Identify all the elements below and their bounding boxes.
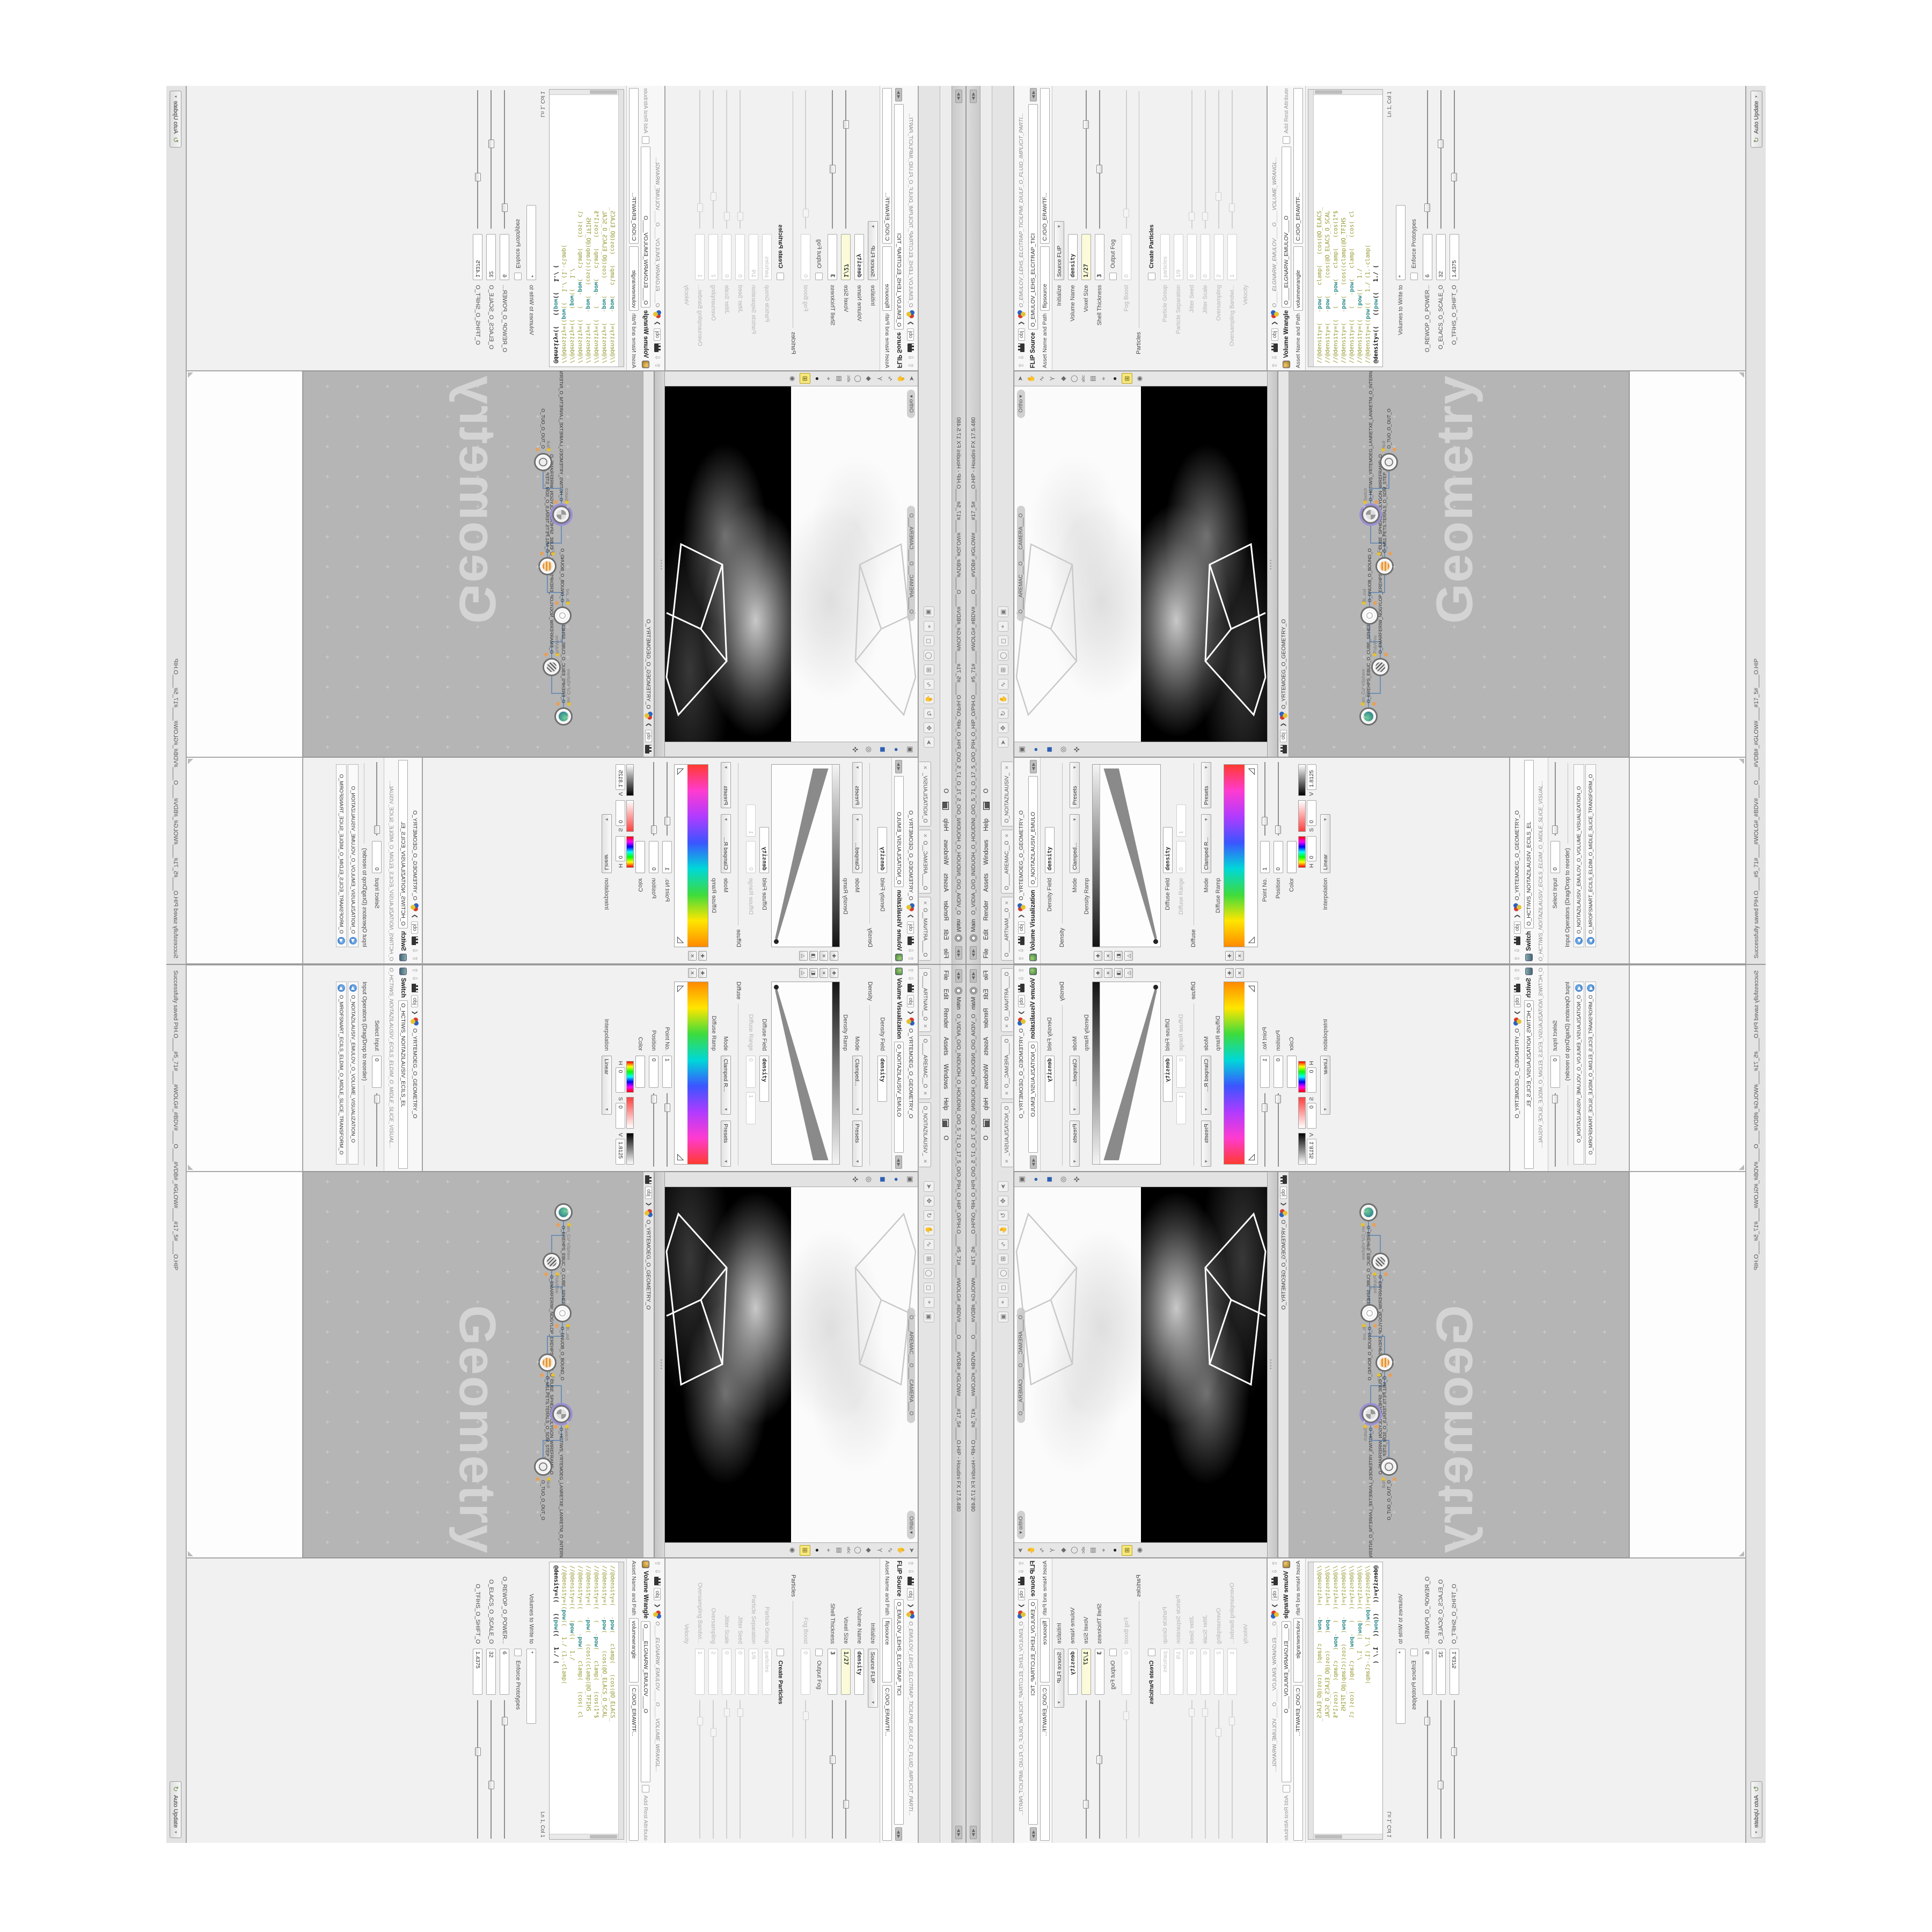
lamp-icon[interactable]: ⌖: [824, 1548, 832, 1552]
ramp-delete-button[interactable]: ✕: [1235, 968, 1244, 978]
lasso-icon[interactable]: ∿: [1038, 1547, 1045, 1553]
shelf-hand-icon[interactable]: ✋: [924, 1225, 935, 1235]
shelf-move-icon[interactable]: ✥: [924, 1196, 935, 1206]
asset-path-input[interactable]: C:/O/O_ERAWTF...: [1040, 88, 1050, 244]
shelf-move-icon[interactable]: ✥: [998, 1196, 1008, 1206]
node-flag-orange[interactable]: [556, 702, 560, 706]
param-slider[interactable]: [1082, 90, 1090, 229]
wrangle-title[interactable]: Volume Wrangle: [1283, 310, 1290, 358]
diffuse-range-min[interactable]: 0: [1176, 1056, 1186, 1088]
node-flag-orange[interactable]: [1372, 702, 1376, 706]
asset-path-input[interactable]: C:/O/O_ERAWTF...: [1040, 1685, 1050, 1841]
viewport-camera-menu[interactable]: O____AREMAC___O____CAMERA___O: [1017, 1308, 1025, 1423]
menu-render[interactable]: Render: [983, 901, 990, 921]
saturation-bar[interactable]: [1298, 1097, 1306, 1129]
nav-down-icon[interactable]: ⇩: [654, 355, 661, 360]
saturation-bar[interactable]: [626, 1097, 634, 1129]
network-node-bound[interactable]: BoundO_DNUOB_O_BOUND_O: [1360, 1304, 1379, 1322]
volvis-path-field[interactable]: O_NOITAZILAUSIV_EMULO: [894, 776, 904, 888]
select-box-icon[interactable]: ▣: [1018, 1176, 1026, 1182]
asset-path-input[interactable]: C:/O/O_ERAWTF...: [882, 88, 892, 244]
diffuse-field-input[interactable]: density: [1163, 827, 1173, 873]
nav-up-icon[interactable]: ⇧: [411, 968, 419, 973]
pane-resize-corner[interactable]: [1739, 759, 1744, 764]
pane-scroll-arrows[interactable]: ◀ ▶: [896, 1827, 903, 1841]
code-vscrollbar[interactable]: [1314, 90, 1382, 95]
network-canvas[interactable]: Geometry sm_CubeSphereO_ERE: [1289, 1172, 1629, 1558]
param-input[interactable]: 1/9: [749, 234, 759, 280]
select-input-slider[interactable]: [374, 1093, 381, 1167]
shelf-hand-icon[interactable]: ✋: [998, 693, 1008, 704]
network-geometry-breadcrumb[interactable]: O_YRTEMOEG_O_GEOMETRY_O: [646, 1220, 652, 1310]
menu-file[interactable]: File: [943, 970, 949, 980]
grid-display-icon-active[interactable]: ⊞: [800, 1545, 810, 1556]
lasso-icon[interactable]: ∿: [887, 1547, 894, 1553]
nav-down-icon[interactable]: ⇩: [907, 948, 914, 953]
nav-up-icon[interactable]: ⇧: [1513, 956, 1521, 961]
node-flag-orange[interactable]: [1373, 601, 1377, 605]
asset-name-input[interactable]: flipsource: [1040, 1618, 1050, 1682]
nav-down-icon[interactable]: ⇩: [654, 1569, 661, 1574]
density-presets-dropdown[interactable]: Presets▼: [852, 1121, 862, 1167]
param-input[interactable]: 1.4375: [473, 1649, 483, 1695]
shelf-cam-icon[interactable]: ▣: [924, 606, 935, 617]
geometry-breadcrumb[interactable]: O_YRTEMOEG_O_GEOMETRY_O: [1514, 1028, 1520, 1118]
update-mode-selector[interactable]: ↻ Auto Update ▾: [1751, 91, 1762, 148]
param-dropdown[interactable]: Source FLIP▼: [868, 1649, 878, 1708]
ramp-add-button[interactable]: ✚: [1225, 951, 1234, 961]
density-ramp-gradient[interactable]: [1093, 982, 1100, 1164]
param-slider[interactable]: [1188, 90, 1196, 229]
param-slider[interactable]: [843, 90, 850, 229]
pane-resize-corner[interactable]: [1739, 1551, 1744, 1556]
pin-icon[interactable]: ✜: [851, 747, 859, 752]
param-slider[interactable]: [501, 1700, 509, 1839]
param-input[interactable]: 1: [696, 234, 705, 280]
param-slider[interactable]: [737, 90, 744, 229]
density-field-input[interactable]: density: [1045, 827, 1055, 873]
vex-code-lines[interactable]: //@density=( -pow( clamp( (cos(@O_ELACS_…: [1314, 90, 1382, 367]
view-arrow-icon[interactable]: ➤: [908, 1547, 916, 1553]
param-input[interactable]: 3: [1095, 234, 1104, 280]
geometry-breadcrumb[interactable]: O_YRTEMOEG_O_GEOMETRY_O: [412, 810, 418, 901]
pane-tab-camera[interactable]: O____AREMAC__O✕: [920, 830, 932, 894]
param-slider[interactable]: [737, 1700, 744, 1839]
param-input[interactable]: 1/9: [1174, 234, 1183, 280]
param-checkbox[interactable]: [816, 1649, 823, 1656]
param-input[interactable]: particles: [1160, 234, 1170, 280]
snap-icon[interactable]: ◆: [865, 376, 873, 381]
network-editor[interactable]: obj ❯ O_YRTEMOEG_O_GEOMETRY_O Geometry: [303, 1172, 654, 1558]
density-ramp-gradient[interactable]: [832, 765, 839, 947]
obj-context-chip[interactable]: obj: [1514, 921, 1521, 934]
handles-sphere-icon[interactable]: ●: [1031, 748, 1040, 752]
pane-scroll-arrows[interactable]: ◀ ▶: [1030, 760, 1037, 773]
nav-up-icon[interactable]: ⇧: [1018, 968, 1025, 973]
node-flag-orange[interactable]: [1373, 1324, 1377, 1328]
pane-tab-mantra[interactable]: O____ARTNAM__O✕: [1001, 968, 1013, 1032]
value-bar[interactable]: [626, 1133, 634, 1165]
vex-code-editor[interactable]: //@density=( -pow( clamp( (cos(@O_ELACS_…: [549, 1562, 624, 1840]
grid-display-icon-active[interactable]: ⊞: [1122, 1545, 1132, 1556]
param-slider[interactable]: [1096, 1700, 1103, 1839]
input-operator-item[interactable]: ◀ O_MROFSNART_ECILS_ELDIM_O_MIDLE_SLICE_…: [1585, 764, 1596, 947]
obj-context-chip[interactable]: obj: [908, 921, 914, 934]
shelf-box-icon[interactable]: ◻: [998, 635, 1008, 646]
geometry-cube-icon[interactable]: ◼: [1045, 1176, 1053, 1182]
lasso-icon[interactable]: ∿: [887, 376, 894, 381]
hue-bar[interactable]: [626, 836, 634, 868]
diffuse-range-min[interactable]: 0: [1176, 841, 1186, 873]
param-slider[interactable]: [1188, 1700, 1196, 1839]
window-titlebar[interactable]: ◀ ▶ Main O_VIDIA_O/O_INIDUOH_O_HOUDINI_O…: [967, 965, 980, 1843]
value-input[interactable]: 1.8125: [616, 1139, 625, 1165]
pane-scroll-arrows[interactable]: ◀ ▶: [955, 946, 962, 960]
ramp-view-toggle[interactable]: ◨: [1114, 968, 1123, 978]
pin-icon[interactable]: ✜: [1073, 1176, 1081, 1182]
param-slider[interactable]: [1202, 1700, 1209, 1839]
value-bar[interactable]: [1298, 1133, 1306, 1165]
input-operator-item[interactable]: ◀ O_MROFSNART_ECILS_ELDIM_O_MIDLE_SLICE_…: [1585, 982, 1596, 1165]
saturation-input[interactable]: 0: [616, 1103, 625, 1129]
add-rest-checkbox[interactable]: [1283, 136, 1290, 144]
update-mode-selector[interactable]: ↻ Auto Update ▾: [170, 91, 182, 148]
shelf-select-icon[interactable]: ➤: [998, 1181, 1008, 1192]
param-slider[interactable]: [829, 90, 837, 229]
menu-render[interactable]: Render: [983, 1008, 990, 1028]
viewport-canvas[interactable]: O____AREMAC___O____CAMERA___O Ortho ▾: [664, 385, 918, 742]
input-operator-item[interactable]: ◀ O_NOITAZILAUSIV_EMULOV_O_VOLUME_VISUAL…: [1574, 764, 1584, 947]
param-input[interactable]: 0: [1187, 234, 1197, 280]
param-checkbox[interactable]: [777, 273, 785, 280]
shelf-lamp-icon[interactable]: ⌖: [924, 1297, 935, 1308]
pane-divider-handle[interactable]: [654, 371, 665, 757]
close-icon[interactable]: ✕: [1004, 1159, 1010, 1163]
param-input[interactable]: 2: [709, 1649, 719, 1695]
pane-resize-corner[interactable]: [188, 1165, 193, 1170]
density-ramp-curve-area[interactable]: [773, 765, 832, 947]
diffuse-range-min[interactable]: 0: [747, 841, 756, 873]
main-desktop-menu[interactable]: Main: [970, 919, 977, 942]
obj-context-chip[interactable]: obj: [1280, 730, 1287, 742]
ramp-key-marker[interactable]: ◺: [1246, 986, 1256, 992]
network-node-polywire[interactable]: PolyWireO_EMARFERIW_NOGYLOP_EREHPS_EBUC_…: [543, 1253, 561, 1271]
param-input[interactable]: density: [855, 234, 865, 280]
point-no-slider[interactable]: [664, 762, 671, 836]
switch-title[interactable]: Switch: [400, 931, 406, 951]
nav-up-icon[interactable]: ⇧: [907, 956, 914, 961]
param-input[interactable]: 32: [1436, 1649, 1446, 1695]
volumes-input[interactable]: *: [527, 205, 537, 280]
color-swatch[interactable]: [636, 841, 646, 873]
nav-up-icon[interactable]: ⇧: [1271, 1561, 1278, 1566]
snap-icon[interactable]: ◆: [1059, 1548, 1067, 1553]
shelf-grid-icon[interactable]: ⊞: [924, 1254, 935, 1264]
param-input[interactable]: 1.4375: [473, 234, 483, 280]
obj-context-chip[interactable]: obj: [1018, 328, 1025, 341]
geometry-breadcrumb[interactable]: O_YRTEMOEG_O_GEOMETRY_O: [412, 1028, 418, 1118]
menu-help[interactable]: Help: [943, 1097, 949, 1110]
grid-display-icon-active[interactable]: ⊞: [1122, 374, 1132, 384]
abc-icon[interactable]: abc: [1081, 1547, 1086, 1554]
ramp-key-marker[interactable]: ◿: [676, 1154, 686, 1160]
geometry-breadcrumb[interactable]: O_YRTEMOEG_O_GEOMETRY_O: [1018, 1028, 1024, 1118]
dark-sphere-icon[interactable]: ●: [814, 377, 821, 380]
handles-sphere-icon[interactable]: ●: [1031, 1177, 1040, 1182]
select-input-field[interactable]: 0: [372, 1056, 382, 1088]
shelf-box-icon[interactable]: ◻: [998, 1283, 1008, 1293]
nav-down-icon[interactable]: ⇩: [907, 355, 914, 360]
ramp-view-toggle[interactable]: ◨: [809, 968, 818, 978]
wrangle-path-field[interactable]: O____ELGNARW_EMULOV____O: [1282, 1621, 1291, 1782]
eye-icon[interactable]: ◉: [1136, 376, 1143, 381]
ramp-view-toggle[interactable]: ◨: [1114, 951, 1123, 961]
lasso-icon[interactable]: ∿: [1038, 376, 1045, 381]
param-slider[interactable]: [474, 1700, 482, 1839]
asset-name-input[interactable]: volumewrangle: [629, 246, 639, 311]
pane-tab-camera[interactable]: O____AREMAC__O✕: [1001, 1035, 1013, 1099]
param-slider[interactable]: [501, 90, 509, 229]
pane-divider-handle[interactable]: [1267, 371, 1278, 757]
nav-down-icon[interactable]: ⇩: [907, 976, 914, 981]
network-canvas[interactable]: Geometry sm_CubeSphereO_ERE: [303, 1172, 643, 1558]
close-icon[interactable]: ✕: [923, 1024, 928, 1028]
density-ramp-curve-area[interactable]: [1100, 765, 1159, 947]
ramp-curve-toggle[interactable]: △: [1124, 968, 1133, 978]
select-input-field[interactable]: 0: [1550, 1056, 1560, 1088]
diffuse-mode-dropdown[interactable]: Clamped R...▼: [1201, 814, 1211, 873]
param-slider[interactable]: [1424, 90, 1431, 229]
add-rest-checkbox[interactable]: [642, 136, 649, 144]
nav-up-icon[interactable]: ⇧: [1018, 1561, 1025, 1566]
flip-path-field[interactable]: O_EMULOV_LEHS_ELCITRAP_TICI: [1028, 104, 1038, 330]
nav-down-icon[interactable]: ⇩: [1018, 976, 1025, 981]
pane-tab-mantra[interactable]: O____ARTNAM__O✕: [920, 897, 932, 961]
asset-path-input[interactable]: C:/O/O_ERAWTF...: [629, 88, 639, 244]
diffuse-presets-dropdown[interactable]: Presets▼: [721, 762, 731, 808]
update-mode-selector[interactable]: ↻ Auto Update ▾: [170, 1781, 182, 1838]
shelf-box-icon[interactable]: ◻: [924, 1283, 935, 1293]
pan-hand-icon[interactable]: ✋: [897, 1546, 905, 1554]
nav-down-icon[interactable]: ⇩: [411, 976, 419, 981]
image-plane-icon[interactable]: ▤: [836, 376, 843, 382]
density-field-input[interactable]: density: [878, 1056, 888, 1102]
input-operator-item[interactable]: ◀ O_MROFSNART_ECILS_ELDIM_O_MIDLE_SLICE_…: [336, 982, 347, 1165]
saturation-input[interactable]: 0: [1307, 800, 1316, 826]
select-input-field[interactable]: 0: [372, 841, 382, 873]
switch-path-field[interactable]: O_HCTIWS_NOITAZILAUSIV_ECILS_EL: [398, 1000, 408, 1169]
close-icon[interactable]: ✕: [923, 1159, 928, 1163]
interpolation-dropdown[interactable]: Linear▼: [602, 814, 612, 873]
vex-code-editor[interactable]: //@density=( -pow( clamp( (cos(@O_ELACS_…: [1308, 89, 1383, 367]
pane-scroll-arrows-right[interactable]: ◀ ▶: [970, 1826, 977, 1839]
pane-resize-corner[interactable]: [188, 759, 193, 764]
param-input[interactable]: 0: [801, 1649, 811, 1695]
target-icon[interactable]: ◎: [1059, 1176, 1067, 1182]
param-slider[interactable]: [1096, 90, 1103, 229]
geometry-cube-icon[interactable]: ◼: [879, 747, 887, 752]
param-slider[interactable]: [1123, 90, 1130, 229]
shelf-select-icon[interactable]: ➤: [924, 737, 935, 748]
obj-context-chip[interactable]: obj: [908, 1588, 914, 1600]
asset-path-input[interactable]: C:/O/O_ERAWTF...: [1293, 88, 1303, 244]
param-input[interactable]: density: [1068, 1649, 1078, 1695]
add-rest-checkbox[interactable]: [642, 1785, 649, 1792]
image-plane-icon[interactable]: ▤: [836, 1547, 843, 1553]
eye-icon[interactable]: ◉: [1136, 1547, 1143, 1553]
param-input[interactable]: 1/9: [749, 1649, 759, 1695]
density-ramp-point[interactable]: [774, 939, 779, 944]
param-input[interactable]: 1.4375: [1450, 1649, 1459, 1695]
node-flag-orange[interactable]: [555, 601, 559, 605]
pane-tab-camera[interactable]: O____AREMAC__O✕: [1001, 830, 1013, 894]
shelf-curve-icon[interactable]: ∿: [924, 1239, 935, 1250]
shelf-rotate-icon[interactable]: ↻: [998, 708, 1008, 719]
shelf-grid-icon[interactable]: ⊞: [924, 664, 935, 675]
diffuse-mode-dropdown[interactable]: Clamped R...▼: [721, 814, 731, 873]
ramp-curve-toggle[interactable]: △: [799, 968, 808, 978]
select-input-field[interactable]: 0: [1550, 841, 1560, 873]
hue-bar[interactable]: [626, 1061, 634, 1093]
pane-scroll-arrows-right[interactable]: ◀ ▶: [970, 90, 977, 103]
menu-render[interactable]: Render: [943, 901, 949, 921]
obj-context-chip[interactable]: obj: [1514, 995, 1521, 1007]
network-node-null[interactable]: NullO_TUO_O_OUT_O: [1380, 453, 1398, 471]
asset-name-input[interactable]: flipsource: [1040, 246, 1050, 311]
density-ramp-widget[interactable]: ✚ ✕ ◨ △: [1092, 982, 1161, 1165]
target-icon[interactable]: ◎: [865, 747, 873, 752]
param-input[interactable]: 0: [1122, 234, 1131, 280]
ramp-key-marker[interactable]: ◺: [676, 986, 686, 992]
param-slider[interactable]: [1437, 1700, 1445, 1839]
obj-context-chip[interactable]: obj: [412, 921, 419, 934]
param-slider[interactable]: [1228, 1700, 1236, 1839]
vex-code-editor[interactable]: //@density=( -pow( clamp( (cos(@O_ELACS_…: [1308, 1562, 1383, 1840]
density-mode-dropdown[interactable]: Clamped...▼: [852, 1056, 862, 1115]
param-dropdown[interactable]: Source FLIP▼: [1054, 221, 1064, 280]
param-input[interactable]: 0: [1187, 1649, 1197, 1695]
param-slider[interactable]: [723, 90, 731, 229]
diffuse-range-max[interactable]: 1: [1176, 1092, 1186, 1124]
pane-scroll-arrows[interactable]: ◀ ▶: [970, 946, 977, 960]
param-slider[interactable]: [723, 1700, 731, 1839]
shelf-hand-icon[interactable]: ✋: [998, 1225, 1008, 1235]
param-slider[interactable]: [710, 90, 718, 229]
pane-tab-mantra[interactable]: O____ARTNAM__O✕: [1001, 897, 1013, 961]
network-geometry-breadcrumb[interactable]: O_YRTEMOEG_O_GEOMETRY_O: [1280, 1220, 1287, 1310]
ortho-indicator[interactable]: Ortho ▾: [1017, 1511, 1025, 1539]
menu-edit[interactable]: Edit: [943, 930, 949, 940]
vex-code-lines[interactable]: //@density=( -pow( clamp( (cos(@O_ELACS_…: [1314, 1562, 1382, 1839]
wrangle-path-field[interactable]: O____ELGNARW_EMULOV____O: [641, 1621, 650, 1782]
value-input[interactable]: 1.8125: [1307, 764, 1316, 790]
switch-path-field[interactable]: O_HCTIWS_NOITAZILAUSIV_ECILS_EL: [1524, 1000, 1534, 1169]
param-input[interactable]: 32: [1436, 234, 1446, 280]
ramp-add-button[interactable]: ✚: [1225, 968, 1234, 978]
geometry-cube-icon[interactable]: ◼: [879, 1176, 887, 1182]
viewport-canvas[interactable]: O____AREMAC___O____CAMERA___O Ortho ▾: [1014, 385, 1268, 742]
diffuse-field-input[interactable]: density: [1163, 1056, 1173, 1102]
shelf-lamp-icon[interactable]: ⌖: [924, 621, 935, 632]
diffuse-presets-dropdown[interactable]: Presets▼: [721, 1121, 731, 1167]
param-input[interactable]: 0: [801, 234, 811, 280]
param-input[interactable]: 1/27: [1081, 234, 1091, 280]
shelf-move-icon[interactable]: ✥: [998, 722, 1008, 733]
ring-icon[interactable]: ◯: [1070, 375, 1078, 382]
param-input[interactable]: 2: [1214, 234, 1224, 280]
network-node-polywire[interactable]: PolyWireO_EMARFERIW_NOGYLOP_EREHPS_EBUC_…: [1371, 1253, 1389, 1271]
pan-hand-icon[interactable]: ✋: [897, 375, 905, 383]
geometry-breadcrumb[interactable]: O_YRTEMOEG_O_GEOMETRY_O: [908, 1028, 914, 1118]
shelf-cam-icon[interactable]: ▣: [998, 1312, 1008, 1322]
wrangle-title[interactable]: Volume Wrangle: [1283, 1571, 1290, 1619]
shelf-cam-icon[interactable]: ▣: [924, 1312, 935, 1322]
dark-sphere-icon[interactable]: ●: [1111, 1548, 1118, 1552]
view-arrow-icon[interactable]: ➤: [1016, 376, 1024, 381]
menu-assets[interactable]: Assets: [983, 873, 990, 892]
interpolation-dropdown[interactable]: Linear▼: [602, 1056, 612, 1115]
switch-path-field[interactable]: O_HCTIWS_NOITAZILAUSIV_ECILS_EL: [398, 760, 408, 928]
scene-viewport[interactable]: ▣ ● ◼ ◎ ✜: [1014, 1172, 1267, 1558]
enforce-prototypes-checkbox[interactable]: [1410, 1649, 1418, 1656]
ramp-delete-button[interactable]: ✕: [1235, 951, 1244, 961]
select-box-icon[interactable]: ▣: [906, 1176, 914, 1182]
param-input[interactable]: 6: [500, 1649, 510, 1695]
shelf-rotate-icon[interactable]: ↻: [998, 1210, 1008, 1221]
ramp-key-marker[interactable]: ◿: [676, 769, 686, 775]
close-icon[interactable]: ✕: [1004, 1024, 1010, 1028]
diffuse-field-input[interactable]: density: [760, 827, 770, 873]
scene-viewport[interactable]: ▣ ● ◼ ◎ ✜: [665, 1172, 918, 1558]
value-input[interactable]: 1.8125: [616, 764, 625, 790]
position-input[interactable]: 0: [1274, 841, 1283, 873]
param-slider[interactable]: [1424, 1700, 1431, 1839]
pane-tab-visualization[interactable]: O_NOITAZILAUSIV_✕: [920, 1102, 932, 1167]
saturation-input[interactable]: 0: [1307, 1103, 1316, 1129]
param-input[interactable]: 6: [1423, 234, 1432, 280]
nav-up-icon[interactable]: ⇧: [907, 1561, 914, 1566]
menu-edit[interactable]: Edit: [943, 989, 949, 1000]
asset-name-input[interactable]: volumewrangle: [629, 1618, 639, 1682]
param-checkbox[interactable]: [777, 1649, 785, 1656]
vex-code-editor[interactable]: //@density=( -pow( clamp( (cos(@O_ELACS_…: [549, 89, 624, 367]
close-icon[interactable]: ✕: [1004, 833, 1010, 838]
close-icon[interactable]: ✕: [1004, 901, 1010, 905]
nav-up-icon[interactable]: ⇧: [1018, 363, 1025, 368]
shelf-sphere-icon[interactable]: ◯: [924, 1268, 935, 1279]
obj-context-chip[interactable]: obj: [645, 1187, 652, 1199]
ramp-delete-button[interactable]: ✕: [688, 951, 697, 961]
menu-windows[interactable]: Windows: [983, 1064, 990, 1089]
pane-resize-corner[interactable]: [1739, 372, 1744, 378]
pane-tab-camera[interactable]: O____AREMAC__O✕: [920, 1035, 932, 1099]
scene-viewport[interactable]: ▣ ● ◼ ◎ ✜: [1014, 371, 1267, 757]
ramp-key-marker[interactable]: ◿: [1246, 769, 1256, 775]
close-icon[interactable]: ✕: [1004, 765, 1010, 770]
saturation-input[interactable]: 0: [616, 800, 625, 826]
pane-tab-visualization[interactable]: O_NOITAZILAUSIV_✕: [1001, 1102, 1013, 1167]
wrangle-title[interactable]: Volume Wrangle: [642, 1571, 649, 1619]
close-icon[interactable]: ✕: [923, 901, 928, 905]
input-operator-item[interactable]: ◀ O_NOITAZILAUSIV_EMULOV_O_VOLUME_VISUAL…: [348, 764, 358, 947]
pan-hand-icon[interactable]: ✋: [1027, 1546, 1035, 1554]
wrangle-path-field[interactable]: O____ELGNARW_EMULOV____O: [641, 147, 650, 308]
shelf-select-icon[interactable]: ➤: [924, 1181, 935, 1192]
asset-name-input[interactable]: flipsource: [882, 1618, 892, 1682]
code-vscrollbar[interactable]: [550, 90, 618, 95]
viewport-camera-menu[interactable]: O____AREMAC___O____CAMERA___O: [1017, 506, 1025, 621]
shelf-select-icon[interactable]: ➤: [998, 737, 1008, 748]
